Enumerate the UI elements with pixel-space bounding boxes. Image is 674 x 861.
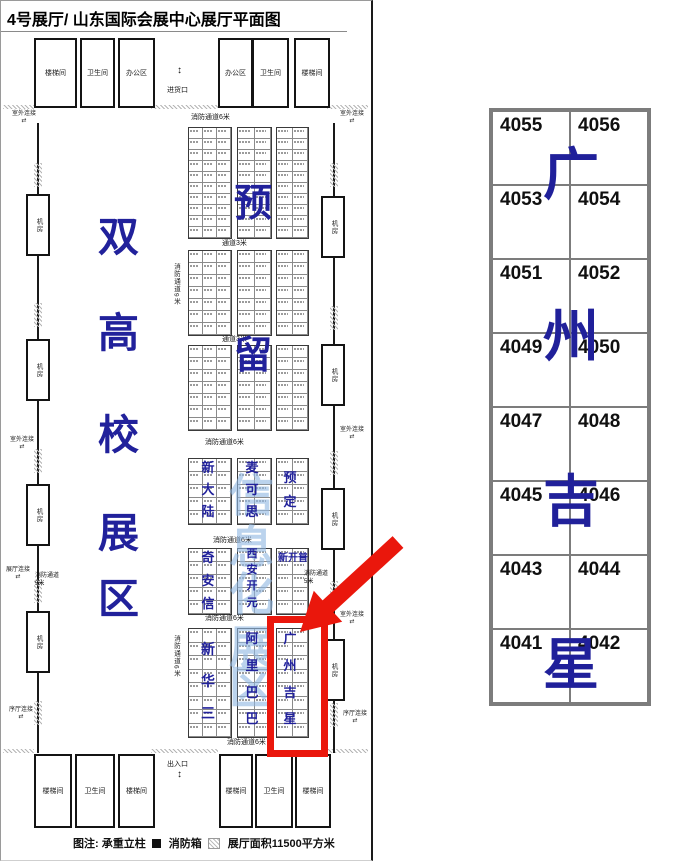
company-label-char: 大: [202, 483, 215, 496]
booth-cell: [189, 194, 203, 205]
booth-cell: [255, 150, 272, 161]
booth-cell: [203, 370, 217, 382]
booth-cell: [189, 263, 203, 275]
company-label-char: 华: [201, 674, 215, 688]
legend-area-label: 展厅面积11500平方米: [228, 835, 335, 851]
booth-cell: [255, 128, 272, 139]
booth-cell: [217, 161, 231, 172]
booth-cell: [238, 275, 255, 287]
booth-cell: [217, 263, 231, 275]
booth-cell: [293, 601, 309, 614]
zone-title-char: 展: [98, 513, 139, 554]
booth-cell: [203, 216, 217, 227]
legend-firebox-label: 消防箱: [169, 835, 202, 851]
company-label-char: 巴: [246, 686, 259, 699]
booth-cell: [293, 370, 309, 382]
booth-cell: [189, 418, 203, 430]
booth-cell: [277, 418, 293, 430]
booth-block: [276, 250, 309, 336]
booth-cell: [255, 299, 272, 311]
booth-cell: [293, 128, 309, 139]
booth-block: [188, 250, 232, 336]
booth-cell: [203, 150, 217, 161]
booth-cell: [277, 370, 293, 382]
aisle-3m-label: 通道3米: [222, 238, 247, 248]
booth-cell: [293, 418, 309, 430]
booth-cell: [217, 275, 231, 287]
outdoor-link-label: 室外连接: [335, 612, 369, 626]
outdoor-link-label: 室外连接: [335, 111, 369, 125]
booth-cell: [217, 287, 231, 299]
booth-cell: [203, 205, 217, 216]
booth-cell: [255, 382, 272, 394]
booth-cell: [189, 251, 203, 263]
booth-cell: [255, 311, 272, 323]
company-label-char: 预: [284, 471, 297, 484]
booth-cell: [293, 194, 309, 205]
booth-cell: [277, 183, 293, 194]
title-divider: [1, 31, 347, 32]
zone-title-char: 校: [98, 415, 139, 456]
booth-cell: [203, 394, 217, 406]
booth-cell: [293, 394, 309, 406]
firebox-square-icon: [208, 838, 220, 849]
booth-cell: [238, 227, 255, 238]
booth-cell: [293, 139, 309, 150]
booth-cell: [277, 227, 293, 238]
booth-cell: [189, 406, 203, 418]
detail-overlay-char: 星: [543, 637, 599, 693]
room: 楼梯间: [34, 754, 72, 828]
booth-cell: [189, 161, 203, 172]
room: 卫生间: [80, 38, 115, 108]
booth-cell: [255, 161, 272, 172]
booth-cell: [277, 287, 293, 299]
machine-room: 机房: [26, 339, 50, 401]
booth-cell: [189, 172, 203, 183]
booth-cell: [293, 275, 309, 287]
booth-cell: [293, 358, 309, 370]
booth-cell: [203, 275, 217, 287]
booth-cell: [189, 275, 203, 287]
company-label-char: 阿: [246, 632, 259, 645]
booth-cell: [189, 370, 203, 382]
booth-cell: [238, 287, 255, 299]
outdoor-link-label: 室外连接: [335, 427, 369, 441]
booth-block: [188, 127, 232, 239]
booth-cell: [238, 139, 255, 150]
booth-cell: [238, 311, 255, 323]
booth-block: [276, 458, 309, 525]
company-label-char: 安: [247, 565, 258, 576]
booth-cell: [255, 251, 272, 263]
booth-cell: [277, 205, 293, 216]
booth-cell: [189, 183, 203, 194]
company-label-char: 安: [202, 574, 215, 587]
wall-hatch: [151, 749, 218, 753]
zone-watermark-char: 化: [229, 572, 274, 617]
booth-cell: [203, 406, 217, 418]
wall-hatch: [3, 105, 34, 109]
booth-cell: [277, 128, 293, 139]
booth-cell: [293, 588, 309, 601]
booth-cell: [293, 183, 309, 194]
booth-cell: [203, 194, 217, 205]
company-label-char: 新: [202, 461, 215, 474]
company-label-char: 里: [246, 659, 259, 672]
booth-cell: [293, 251, 309, 263]
booth-cell: [238, 251, 255, 263]
detail-overlay-char: 州: [543, 309, 599, 365]
booth-cell: [277, 263, 293, 275]
booth-cell: [189, 287, 203, 299]
booth-cell: [293, 299, 309, 311]
room: 楼梯间: [294, 38, 330, 108]
floorplan-panel: 4号展厅/ 山东国际会展中心展厅平面图 进货口 出入口 室外连接 室外连接 室外…: [0, 0, 373, 861]
booth-cell: [203, 139, 217, 150]
lobby-link-label: 序厅连接: [338, 711, 372, 725]
zone-title-char: 双: [98, 217, 139, 258]
legend: 图注: 承重立柱 消防箱 展厅面积11500平方米: [73, 835, 335, 851]
booth-cell: [238, 128, 255, 139]
booth-cell: [293, 161, 309, 172]
booth-cell: [203, 287, 217, 299]
room: 办公区: [218, 38, 253, 108]
booth-cell: [203, 128, 217, 139]
booth-cell: [217, 205, 231, 216]
booth-cell: [293, 511, 309, 524]
booth-cell: [189, 139, 203, 150]
booth-cell: [203, 346, 217, 358]
booth-block: [237, 250, 272, 336]
booth-cell: [217, 382, 231, 394]
lobby-link-label: 序厅连接: [4, 707, 38, 721]
booth-cell: [217, 150, 231, 161]
booth-cell: [277, 346, 293, 358]
company-label-char: 定: [284, 495, 297, 508]
reserved-zone-char: 预: [234, 185, 272, 223]
booth-cell: [255, 406, 272, 418]
booth-cell: [277, 299, 293, 311]
company-label-char: 陆: [202, 505, 215, 518]
door-hatch: [34, 303, 42, 327]
wall-hatch: [327, 105, 368, 109]
room: 楼梯间: [34, 38, 77, 108]
company-label-char: 元: [247, 598, 258, 609]
fire-lane-6m-label: 消防通道6米: [191, 112, 230, 122]
booth-cell: [238, 299, 255, 311]
booth-cell: [217, 406, 231, 418]
company-label-char: 信: [202, 597, 215, 610]
booth-cell: [255, 287, 272, 299]
booth-cell: [293, 382, 309, 394]
booth-cell: [277, 311, 293, 323]
zone-title-char: 区: [98, 579, 139, 620]
booth-cell: [189, 323, 203, 335]
booth-cell: [277, 194, 293, 205]
booth-cell: [189, 128, 203, 139]
booth-cell: [255, 227, 272, 238]
booth-cell: [203, 311, 217, 323]
room: 楼梯间: [219, 754, 253, 828]
legend-column-label: 图注: 承重立柱: [73, 835, 146, 851]
company-label-char: 三: [201, 706, 215, 720]
detail-overlay-char: 吉: [543, 474, 599, 530]
booth-cell: [203, 172, 217, 183]
booth-cell: [189, 724, 203, 738]
booth-cell: [293, 406, 309, 418]
booth-cell: [293, 287, 309, 299]
booth-cell: [217, 418, 231, 430]
booth-cell: [189, 150, 203, 161]
screenshot-root: 4号展厅/ 山东国际会展中心展厅平面图 进货口 出入口 室外连接 室外连接 室外…: [0, 0, 674, 861]
booth-cell: [189, 656, 203, 670]
booth-cell: [293, 205, 309, 216]
booth-cell: [255, 418, 272, 430]
booth-cell: [203, 418, 217, 430]
room: 卫生间: [255, 754, 293, 828]
booth-cell: [277, 406, 293, 418]
booth-block: [276, 127, 309, 239]
company-label: 新开普: [278, 554, 308, 564]
booth-cell: [217, 724, 231, 738]
booth-cell: [189, 394, 203, 406]
booth-cell: [293, 263, 309, 275]
booth-cell: [217, 346, 231, 358]
door-hatch: [330, 581, 338, 605]
booth-cell: [293, 323, 309, 335]
machine-room: 机房: [26, 611, 50, 673]
booth-cell: [189, 216, 203, 227]
booth-cell: [255, 172, 272, 183]
exit-door-arrow-icon: [177, 769, 182, 780]
booth-cell: [217, 172, 231, 183]
booth-cell: [238, 418, 255, 430]
booth-cell: [238, 263, 255, 275]
company-label-char: 西: [247, 549, 258, 560]
machine-room: 机房: [26, 194, 50, 256]
booth-cell: [203, 183, 217, 194]
wall-hatch: [3, 749, 34, 753]
highlight-rectangle: [267, 616, 328, 757]
booth-cell: [189, 311, 203, 323]
reserved-zone-char: 留: [234, 337, 272, 375]
booth-cell: [189, 227, 203, 238]
booth-cell: [203, 251, 217, 263]
company-label-char: 可: [246, 483, 259, 496]
booth-cell: [217, 299, 231, 311]
booth-cell: [293, 311, 309, 323]
door-hatch: [330, 451, 338, 475]
booth-cell: [217, 251, 231, 263]
booth-block: [276, 345, 309, 431]
booth-cell: [277, 216, 293, 227]
booth-cell: [277, 382, 293, 394]
booth-cell: [217, 227, 231, 238]
room: 卫生间: [252, 38, 289, 108]
booth-cell: [293, 346, 309, 358]
door-hatch: [34, 163, 42, 187]
fire-lane-9m-vertical-label: 消防通道9米: [172, 263, 179, 305]
detail-overlay-char: 广: [543, 147, 599, 203]
room: 楼梯间: [295, 754, 331, 828]
booth-cell: [255, 394, 272, 406]
zone-title-char: 高: [98, 313, 139, 354]
booth-cell: [277, 150, 293, 161]
machine-room: 机房: [321, 344, 345, 406]
booth-cell: [217, 358, 231, 370]
booth-cell: [203, 358, 217, 370]
booth-cell: [277, 575, 293, 588]
company-label-char: 巴: [246, 712, 259, 725]
booth-cell: [217, 139, 231, 150]
booth-cell: [277, 511, 293, 524]
booth-cell: [277, 161, 293, 172]
booth-cell: [238, 161, 255, 172]
booth-cell: [217, 311, 231, 323]
booth-cell: [203, 227, 217, 238]
booth-cell: [217, 216, 231, 227]
room: 卫生间: [75, 754, 115, 828]
booth-cell: [238, 406, 255, 418]
booth-cell: [203, 724, 217, 738]
booth-cell: [217, 128, 231, 139]
detail-booth-4043: 4043: [492, 555, 570, 629]
booth-cell: [277, 358, 293, 370]
door-hatch: [34, 449, 42, 473]
booth-block: [188, 345, 232, 431]
booth-cell: [277, 275, 293, 287]
page-title: 4号展厅/ 山东国际会展中心展厅平面图: [7, 6, 281, 30]
loading-door-label: 进货口: [167, 85, 188, 95]
booth-cell: [277, 251, 293, 263]
fire-lane-6m-vertical-label: 消防通道6米: [172, 635, 179, 677]
loading-door-arrow-icon: [177, 65, 182, 76]
door-hatch: [330, 703, 338, 727]
machine-room: 机房: [321, 488, 345, 550]
booth-cell: [238, 382, 255, 394]
room: 办公区: [118, 38, 155, 108]
machine-room: 机房: [321, 196, 345, 258]
booth-cell: [203, 382, 217, 394]
company-label-char: 奇: [202, 551, 215, 564]
booth-cell: [203, 323, 217, 335]
exit-door-label: 出入口: [167, 759, 188, 769]
booth-cell: [277, 588, 293, 601]
company-label-char: 思: [246, 505, 259, 518]
booth-cell: [277, 139, 293, 150]
booth-cell: [217, 370, 231, 382]
booth-cell: [238, 394, 255, 406]
booth-cell: [238, 150, 255, 161]
booth-cell: [203, 263, 217, 275]
booth-cell: [293, 227, 309, 238]
door-hatch: [330, 163, 338, 187]
company-label-char: 开: [247, 581, 258, 592]
door-hatch: [330, 306, 338, 330]
detail-panel: 4055405640534054405140524049405040474048…: [489, 108, 651, 706]
outdoor-link-label: 室外连接: [5, 437, 39, 451]
booth-cell: [238, 172, 255, 183]
room: 楼梯间: [118, 754, 155, 828]
booth-cell: [217, 394, 231, 406]
fire-lane-5m-label: 消防通道5米: [304, 571, 330, 586]
booth-cell: [255, 275, 272, 287]
column-square-icon: [152, 839, 161, 848]
booth-cell: [277, 172, 293, 183]
booth-cell: [189, 346, 203, 358]
booth-cell: [293, 172, 309, 183]
company-label-char: 麦: [246, 461, 259, 474]
machine-room: 机房: [26, 484, 50, 546]
booth-cell: [277, 323, 293, 335]
wall-hatch: [151, 105, 218, 109]
company-label-char: 新: [201, 642, 215, 656]
booth-cell: [255, 139, 272, 150]
detail-booth-4044: 4044: [570, 555, 648, 629]
booth-cell: [293, 150, 309, 161]
booth-cell: [203, 656, 217, 670]
booth-cell: [293, 216, 309, 227]
fire-lane-5m-label: 消防通道5米: [35, 573, 61, 588]
booth-cell: [189, 382, 203, 394]
booth-cell: [203, 299, 217, 311]
fire-lane-6m-label: 消防通道6米: [205, 437, 244, 447]
booth-cell: [189, 299, 203, 311]
booth-cell: [217, 183, 231, 194]
booth-cell: [255, 323, 272, 335]
booth-cell: [189, 358, 203, 370]
booth-cell: [277, 601, 293, 614]
outdoor-link-label: 室外连接: [7, 111, 41, 125]
fire-lane-6m-label: 消防通道6米: [227, 737, 266, 747]
booth-cell: [277, 394, 293, 406]
booth-cell: [255, 263, 272, 275]
booth-cell: [203, 161, 217, 172]
hall-link-label: 展厅连接: [1, 567, 35, 581]
booth-cell: [189, 205, 203, 216]
booth-cell: [217, 194, 231, 205]
